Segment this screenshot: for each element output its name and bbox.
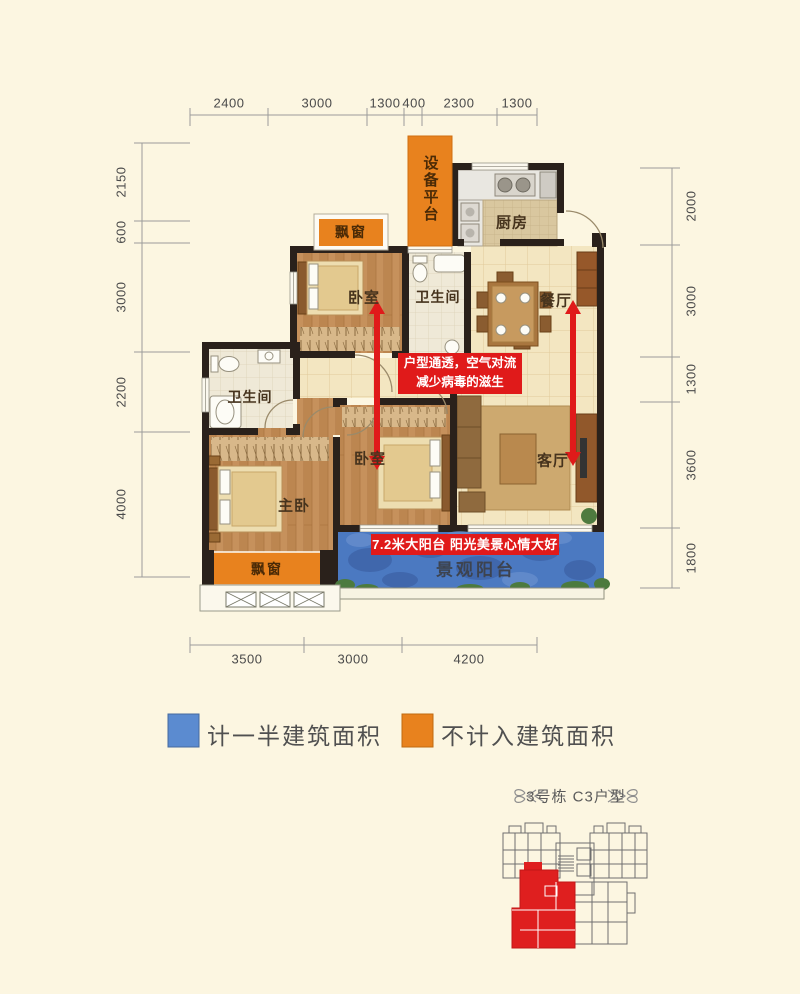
fridge xyxy=(540,172,556,198)
dim-left: 600 xyxy=(114,220,129,243)
airflow-callout: 户型通透，空气对流 减少病毒的滋生 xyxy=(398,353,522,394)
coffee-table xyxy=(500,434,536,484)
room-label-living: 客厅 xyxy=(537,450,569,471)
legend-label-half-area: 计一半建筑面积 xyxy=(207,717,382,751)
toilet xyxy=(211,356,218,372)
armchair xyxy=(459,492,485,512)
dim-right: 1800 xyxy=(684,543,699,574)
dim-right: 3600 xyxy=(684,450,699,481)
highlighted-unit xyxy=(512,870,575,948)
dim-top: 400 xyxy=(402,96,425,111)
sofa xyxy=(457,396,481,488)
dim-top: 3000 xyxy=(302,96,333,111)
room-label-dining: 餐厅 xyxy=(540,290,572,311)
airflow-callout-line1: 户型通透，空气对流 xyxy=(398,354,522,373)
dim-left: 3000 xyxy=(114,282,129,313)
balcony-rail xyxy=(336,588,604,599)
legend-swatch-half-area xyxy=(168,714,199,747)
dim-left: 2200 xyxy=(114,377,129,408)
dim-right: 3000 xyxy=(684,286,699,317)
bathtub xyxy=(434,255,465,272)
building-key-plan xyxy=(503,823,647,948)
bay-window-rail xyxy=(200,585,340,611)
room-label-equipment-platform: 设备平台 xyxy=(420,155,441,223)
dim-top: 2400 xyxy=(214,96,245,111)
room-label-bedroom-top: 卧室 xyxy=(348,287,380,308)
unit-title: 3号栋 C3户型 xyxy=(526,786,626,807)
legend-swatch-no-area xyxy=(402,714,433,747)
room-label-bay-window-top: 飘窗 xyxy=(335,222,367,242)
dim-bottom: 3500 xyxy=(232,652,263,667)
room-label-master-bedroom: 主卧 xyxy=(278,495,310,516)
bed-headboard xyxy=(298,262,307,314)
room-label-bay-window-bottom: 飘窗 xyxy=(251,559,283,579)
room-label-bathroom-top: 卫生间 xyxy=(416,287,461,307)
toilet xyxy=(413,256,427,263)
dim-bottom: 3000 xyxy=(338,652,369,667)
legend-label-no-area: 不计入建筑面积 xyxy=(441,717,616,751)
dim-left: 4000 xyxy=(114,489,129,520)
tv xyxy=(580,438,587,478)
dim-top: 1300 xyxy=(502,96,533,111)
wardrobe-top-bedroom xyxy=(300,327,400,351)
washbasin xyxy=(265,352,273,360)
highlighted-unit xyxy=(524,862,542,870)
wardrobe-master xyxy=(211,437,329,461)
dim-left: 2150 xyxy=(114,167,129,198)
room-label-bedroom-middle: 卧室 xyxy=(354,448,386,469)
bed-headboard xyxy=(442,435,450,511)
plant xyxy=(581,508,597,524)
room-label-kitchen: 厨房 xyxy=(496,212,528,233)
dim-right: 1300 xyxy=(684,364,699,395)
washbasin xyxy=(445,340,459,354)
floorplan-page: 2400 3000 1300 400 2300 1300 2150 600 30… xyxy=(0,0,800,994)
room-label-bathroom-left: 卫生间 xyxy=(228,387,273,407)
wardrobe-middle-bedroom xyxy=(342,407,446,427)
room-label-balcony: 景观阳台 xyxy=(436,556,516,581)
balcony-banner: 7.2米大阳台 阳光美景心情大好 xyxy=(371,534,559,555)
cabinet xyxy=(577,252,597,306)
dim-top: 2300 xyxy=(444,96,475,111)
airflow-callout-line2: 减少病毒的滋生 xyxy=(398,373,522,392)
dim-top: 1300 xyxy=(370,96,401,111)
bed-headboard xyxy=(209,468,218,530)
dim-right: 2000 xyxy=(684,191,699,222)
dim-bottom: 4200 xyxy=(454,652,485,667)
